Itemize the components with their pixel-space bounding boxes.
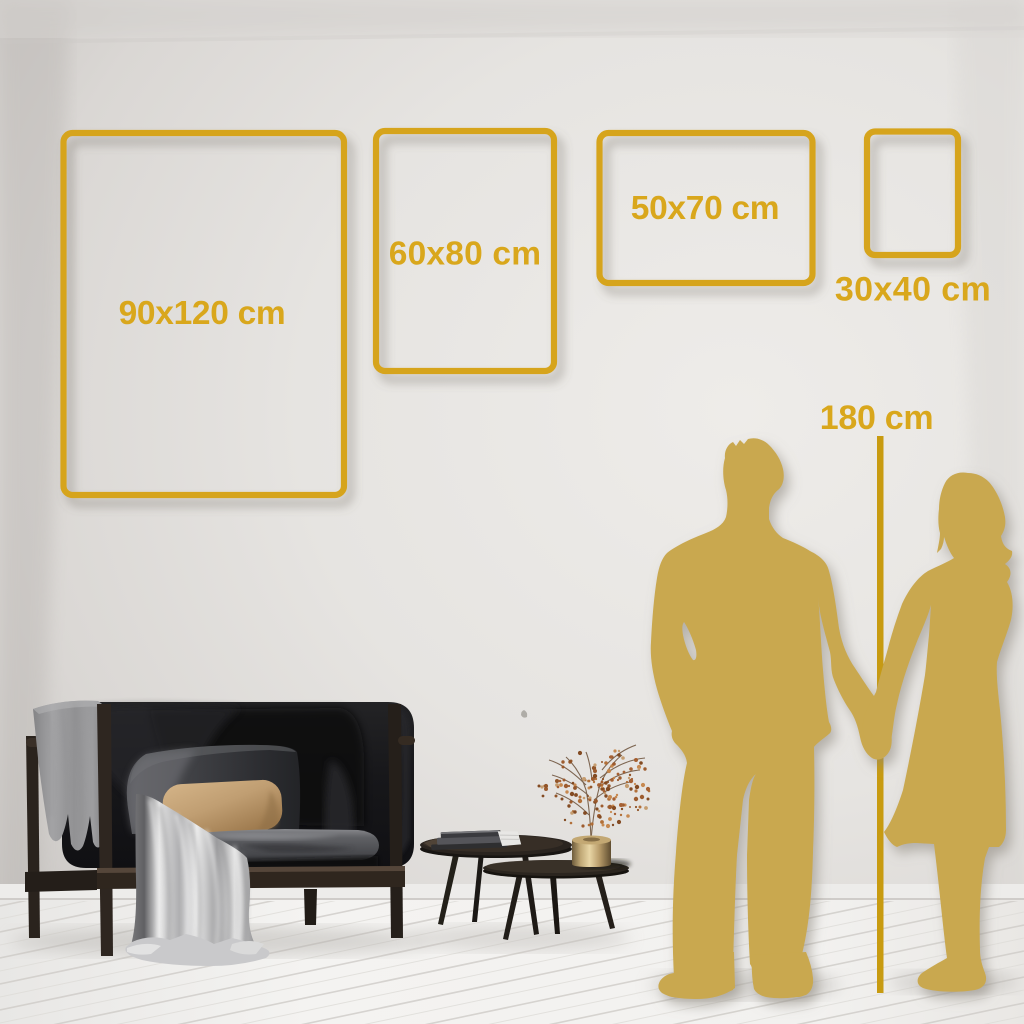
svg-text:180 cm: 180 cm xyxy=(820,399,934,437)
svg-text:50x70 cm: 50x70 cm xyxy=(631,190,779,227)
svg-text:30x40 cm: 30x40 cm xyxy=(835,271,991,309)
svg-text:90x120 cm: 90x120 cm xyxy=(119,295,286,332)
svg-text:60x80 cm: 60x80 cm xyxy=(389,236,541,273)
